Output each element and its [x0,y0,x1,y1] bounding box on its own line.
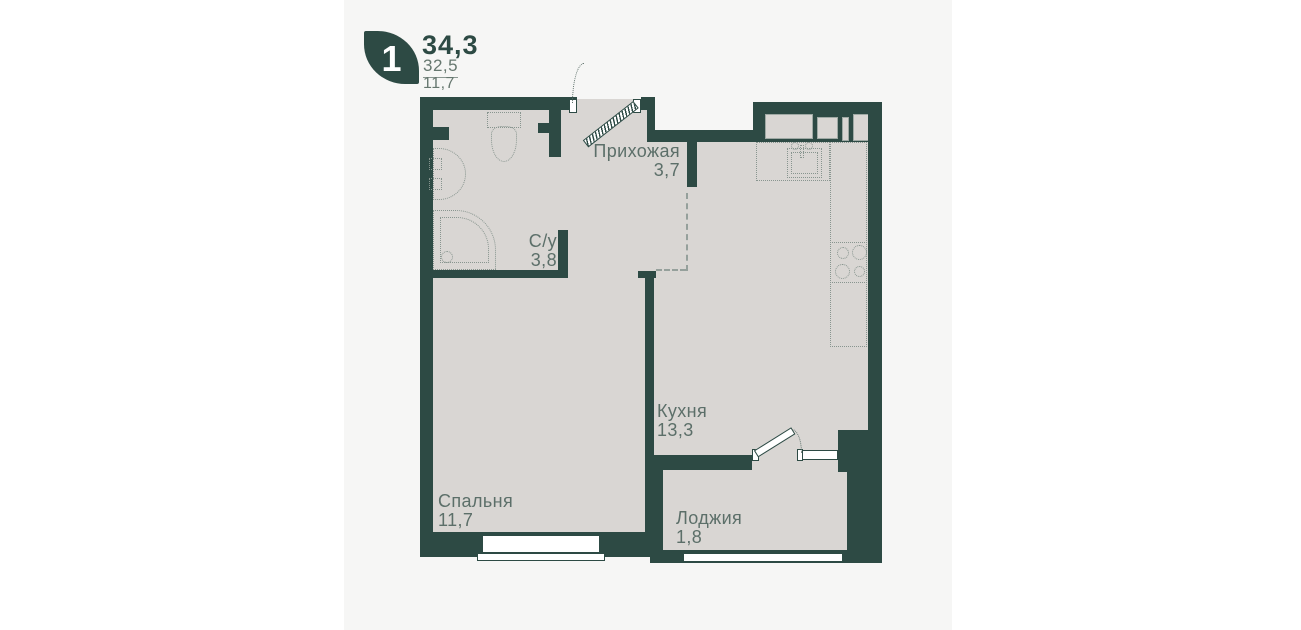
wall-bathroom-south [420,270,568,278]
kitchen-name: Кухня [657,401,707,421]
wall-shaft-stub [538,123,549,133]
sink-faucet-stem [800,145,804,158]
bathroom-area: 3,8 [497,251,557,270]
floorplan-page: 1 34,3 32,5 11,7 [0,0,1301,630]
shower-drain-icon [441,251,453,263]
loggia-area: 1,8 [676,528,776,547]
washbasin-fixture-2 [429,178,442,190]
label-hallway: Прихожая 3,7 [560,142,680,180]
hob-burner-4 [854,266,865,277]
vent-recess-1 [765,114,813,139]
wall-outer-right [868,102,882,460]
bedroom-name: Спальня [438,491,513,511]
floor-left-column [433,140,653,532]
label-bathroom: С/у 3,8 [497,232,557,270]
wall-loggia-left [650,455,663,563]
wall-loggia-top [663,455,752,470]
wall-top-left [420,97,577,110]
label-bedroom: Спальня 11,7 [438,492,548,530]
kitchen-sink-basin [791,152,818,174]
wall-pilaster-left [432,127,449,140]
unit-rooms-count: 1 [381,41,401,77]
bathroom-name: С/у [529,231,557,251]
wall-top-mid [641,97,655,110]
loggia-glazing [683,553,843,562]
washbasin-fixture-1 [429,158,442,170]
wall-hallway-stub [687,140,697,187]
zone-boundary-vertical [686,193,688,271]
zone-boundary-horizontal [656,269,686,271]
label-loggia: Лоджия 1,8 [676,509,776,547]
wall-loggia-right [847,450,882,563]
sink-faucet-left [791,142,799,150]
bedroom-area: 11,7 [438,511,548,530]
vent-recess-3 [842,117,849,141]
bedroom-window-sill [477,553,605,561]
hob-burner-2 [852,245,867,260]
kitchen-loggia-window [802,450,838,460]
hob-burner-3 [835,264,850,279]
sink-faucet-right [805,142,813,150]
kitchen-area: 13,3 [657,421,757,440]
loggia-name: Лоджия [676,508,742,528]
label-kitchen: Кухня 13,3 [657,402,757,440]
vent-recess-2 [817,117,838,139]
unit-area-extra: 11,7 [423,75,455,93]
hob-burner-1 [837,247,849,259]
hallway-area: 3,7 [560,161,680,180]
bedroom-window [482,535,600,553]
hallway-name: Прихожая [593,141,680,161]
